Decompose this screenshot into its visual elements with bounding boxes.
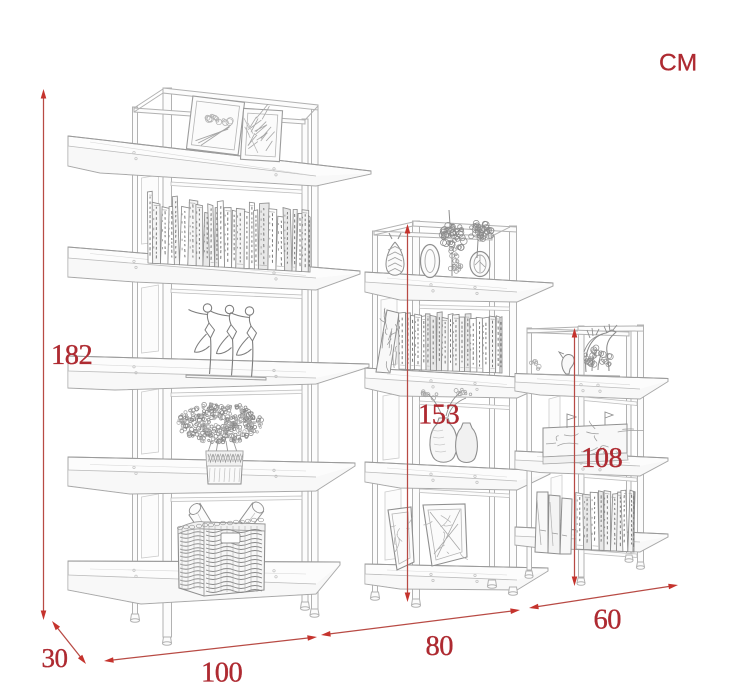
svg-text:100: 100 [201, 658, 243, 689]
svg-text:CM: CM [659, 50, 697, 77]
svg-text:60: 60 [594, 605, 622, 636]
svg-text:108: 108 [581, 443, 623, 474]
svg-text:182: 182 [51, 340, 92, 371]
svg-text:80: 80 [426, 631, 454, 662]
svg-text:30: 30 [42, 643, 68, 673]
svg-text:153: 153 [418, 400, 460, 431]
